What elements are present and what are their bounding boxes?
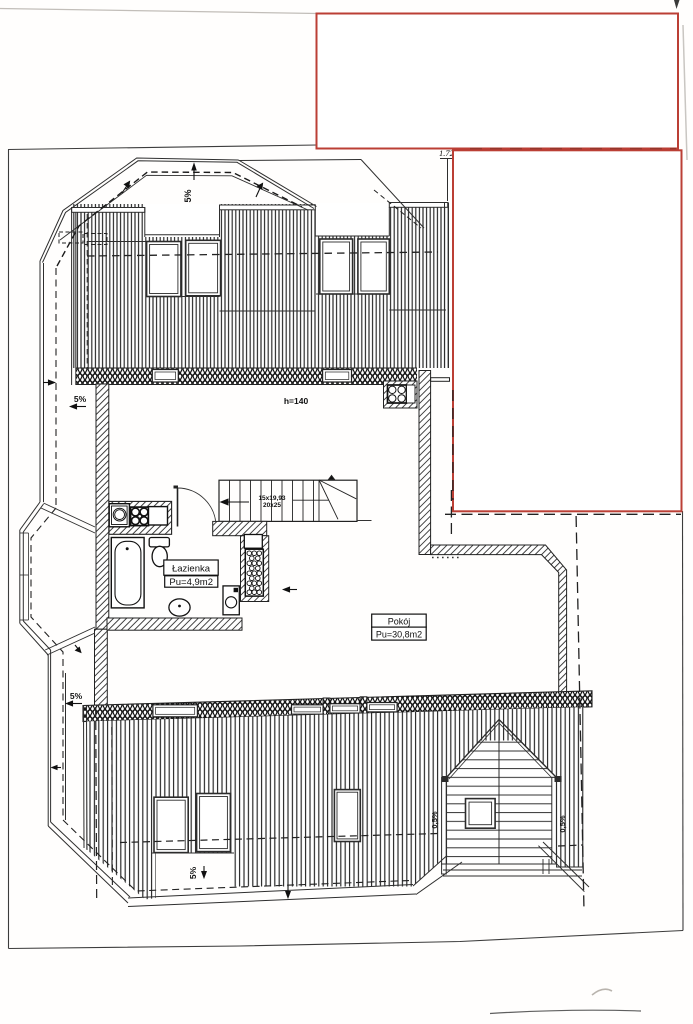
svg-text:5%: 5% (70, 691, 83, 701)
svg-text:h=140: h=140 (284, 396, 309, 406)
svg-text:15x19,93: 15x19,93 (258, 495, 285, 502)
svg-text:0,5%: 0,5% (558, 815, 567, 832)
svg-text:Pu=4,9m2: Pu=4,9m2 (169, 577, 213, 588)
svg-text:20x25: 20x25 (263, 502, 281, 509)
svg-text:5%: 5% (188, 866, 198, 879)
svg-text:Pokój: Pokój (388, 616, 411, 626)
svg-text:Pu=30,8m2: Pu=30,8m2 (376, 629, 422, 639)
svg-text:5%: 5% (183, 189, 193, 202)
svg-text:0,5%: 0,5% (430, 811, 439, 828)
svg-text:Łazienka: Łazienka (172, 564, 211, 575)
svg-text:5%: 5% (74, 394, 87, 404)
